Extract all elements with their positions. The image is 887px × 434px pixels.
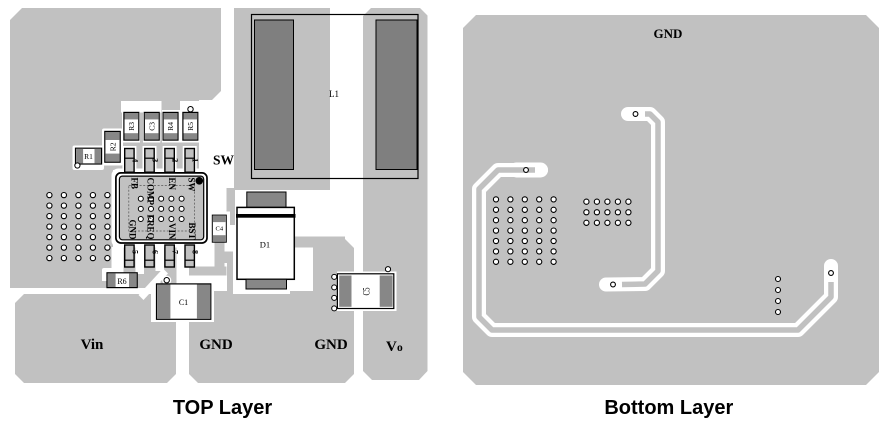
- svg-text:Bottom Layer: Bottom Layer: [604, 397, 733, 419]
- svg-text:C1: C1: [179, 298, 188, 307]
- svg-text:3: 3: [151, 158, 160, 162]
- svg-text:R1: R1: [84, 152, 93, 161]
- svg-text:EN: EN: [167, 178, 177, 191]
- svg-text:TOP Layer: TOP Layer: [173, 397, 273, 419]
- svg-text:C4: C4: [216, 226, 224, 233]
- svg-text:GND: GND: [128, 220, 138, 241]
- svg-text:FREQ: FREQ: [146, 214, 156, 239]
- svg-text:GND: GND: [199, 337, 233, 353]
- svg-text:C3: C3: [147, 122, 156, 131]
- svg-text:D1: D1: [260, 240, 270, 250]
- svg-text:VIN: VIN: [167, 223, 177, 240]
- svg-text:C5: C5: [362, 287, 372, 295]
- svg-text:GND: GND: [654, 26, 683, 41]
- svg-text:4: 4: [130, 158, 139, 162]
- svg-text:SW: SW: [186, 178, 196, 192]
- svg-text:L1: L1: [329, 89, 339, 99]
- svg-text:Vin: Vin: [81, 337, 104, 353]
- svg-text:8: 8: [191, 250, 200, 254]
- svg-text:R5: R5: [186, 122, 195, 131]
- svg-text:1: 1: [191, 158, 200, 162]
- svg-text:R2: R2: [108, 142, 117, 151]
- svg-text:V: V: [386, 339, 397, 355]
- svg-text:R3: R3: [127, 122, 136, 131]
- svg-text:2: 2: [171, 158, 180, 162]
- svg-text:BST: BST: [187, 222, 197, 239]
- svg-text:GND: GND: [314, 337, 348, 353]
- svg-text:FB: FB: [130, 178, 140, 190]
- svg-text:7: 7: [171, 250, 180, 254]
- svg-text:R6: R6: [117, 277, 126, 286]
- svg-text:o: o: [397, 342, 403, 354]
- svg-text:5: 5: [130, 250, 139, 254]
- svg-text:COMP: COMP: [146, 178, 156, 206]
- svg-text:6: 6: [151, 250, 160, 254]
- svg-text:R4: R4: [166, 122, 175, 131]
- svg-text:SW: SW: [213, 153, 235, 168]
